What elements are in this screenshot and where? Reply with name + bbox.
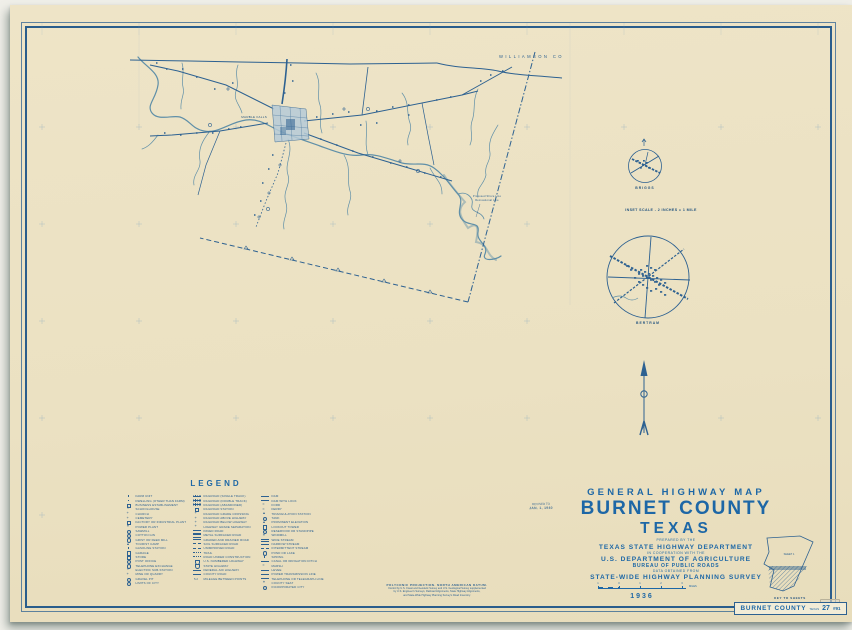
- dot-symbol-icon: [124, 499, 133, 502]
- circ-symbol-icon: [124, 529, 133, 532]
- revision-stamp: REVISED TO JAN. 1, 1940: [518, 502, 564, 512]
- key-map-shape: [764, 536, 813, 591]
- legend-item: LIMITS OF CITY: [124, 581, 192, 585]
- cross-symbol-icon: [124, 516, 133, 519]
- star-symbol-icon: [260, 534, 269, 537]
- dash-symbol-icon: [192, 542, 201, 545]
- tri-symbol-icon: [260, 521, 269, 524]
- key-sheet1-label: SHEET 1: [784, 554, 795, 557]
- dots-symbol-icon: [192, 555, 201, 558]
- key-to-sheets-caption: KEY TO SHEETS: [774, 597, 806, 600]
- farm-symbols: [156, 63, 504, 215]
- line-symbol-icon: [192, 573, 201, 576]
- legend-column-2: RAILROAD (SINGLE TRACK)RAILROAD (DOUBLE …: [192, 494, 260, 581]
- line-symbol-icon: [192, 538, 201, 541]
- bertram-inset: [607, 236, 690, 318]
- dots-symbol-icon: [192, 551, 201, 554]
- revision-date: JAN. 1, 1940: [529, 506, 553, 510]
- dbl-symbol-icon: [192, 534, 201, 537]
- line-symbol-icon: [260, 542, 269, 545]
- graticule: [39, 23, 821, 518]
- circ-symbol-icon: [124, 577, 133, 580]
- line-symbol-icon: [260, 560, 269, 563]
- num-symbol-icon: [192, 577, 201, 580]
- legend-title: LEGEND: [190, 479, 241, 488]
- legend-item: MILEAGE BETWEEN POINTS: [192, 577, 260, 581]
- map-series-title: GENERAL HIGHWAY MAP: [587, 488, 765, 498]
- scale-bar-unit: MILES: [689, 585, 697, 588]
- annotation-line2: Recreational Line: [475, 200, 499, 203]
- rr-symbol-icon: [192, 503, 201, 506]
- rr-symbol-icon: [192, 495, 201, 498]
- rr-symbol-icon: [192, 499, 201, 502]
- shield-symbol-icon: [192, 564, 201, 567]
- scale-bar-line: [598, 586, 686, 589]
- wave-symbol-icon: [260, 508, 269, 511]
- roads: [150, 59, 512, 227]
- star-symbol-icon: [124, 525, 133, 528]
- legend-item: INCORPORATED CITY: [260, 585, 328, 589]
- corner-number: 27: [822, 605, 830, 612]
- survey-note: STATE-WIDE HIGHWAY PLANNING SURVEY: [590, 574, 762, 581]
- town-marble-falls: [272, 105, 309, 142]
- prepared-by: PREPARED BY THE: [657, 539, 696, 543]
- line-symbol-icon: [260, 495, 269, 498]
- legend: LEGEND FARM UNITDWELLING (OTHER THAN FAR…: [110, 479, 322, 599]
- line-symbol-icon: [192, 569, 201, 572]
- place-symbols: [208, 87, 419, 211]
- shield-symbol-icon: [192, 560, 201, 563]
- line-symbol-icon: [260, 569, 269, 572]
- dash-symbol-icon: [260, 547, 269, 550]
- dbl-symbol-icon: [192, 529, 201, 532]
- circ-symbol-icon: [260, 516, 269, 519]
- star-symbol-icon: [260, 582, 269, 585]
- sq-symbol-icon: [260, 525, 269, 528]
- annotation-leader: [476, 204, 480, 217]
- corner-code: #91: [833, 606, 841, 611]
- tri-symbol-icon: [124, 542, 133, 545]
- circ-symbol-icon: [260, 551, 269, 554]
- bertram-label: BERTRAM: [636, 322, 660, 326]
- town-label: MARBLE FALLS: [241, 116, 267, 119]
- briggs-label: BRIGGS: [635, 187, 654, 191]
- corner-state: TEXAS: [809, 607, 819, 611]
- corner-index-label: BURNET COUNTY TEXAS 27 #91: [734, 602, 847, 615]
- projection-footnote: POLYCONIC PROJECTION. NORTH AMERICAN DAT…: [362, 583, 512, 597]
- cross-symbol-icon: [192, 525, 201, 528]
- dbl-symbol-icon: [260, 538, 269, 541]
- briggs-inset: [629, 139, 662, 183]
- sq-symbol-icon: [124, 551, 133, 554]
- tri-symbol-icon: [260, 512, 269, 515]
- dot-symbol-icon: [124, 547, 133, 550]
- line-symbol-icon: [260, 573, 269, 576]
- circ-symbol-icon: [124, 534, 133, 537]
- legend-column-3: DAMDAM WITH LOCKFORDFERRYTRIANGULATION S…: [260, 494, 328, 590]
- inset-scale-note: INSET SCALE - 2 INCHES = 1 MILE: [625, 209, 697, 213]
- map-sheet: WILLIAMSON CO MARBLE FALLS Proposed Shor…: [10, 5, 852, 622]
- circ-symbol-icon: [124, 582, 133, 585]
- legend-column-1: FARM UNITDWELLING (OTHER THAN FARM)BUSIN…: [124, 494, 192, 585]
- line-symbol-icon: [260, 499, 269, 502]
- neighbor-county-label: WILLIAMSON CO: [499, 55, 564, 60]
- dot-symbol-icon: [260, 555, 269, 558]
- circ-symbol-icon: [260, 586, 269, 589]
- dash-symbol-icon: [192, 547, 201, 550]
- corner-county: BURNET COUNTY: [741, 605, 807, 612]
- cross-symbol-icon: [124, 573, 133, 576]
- map-year: 1936: [630, 593, 654, 601]
- county-title: BURNET COUNTY: [581, 499, 772, 520]
- sq-symbol-icon: [124, 555, 133, 558]
- dot-symbol-icon: [124, 495, 133, 498]
- river-colorado: [138, 57, 501, 260]
- north-arrow-icon: [640, 360, 648, 435]
- circ-symbol-icon: [124, 560, 133, 563]
- circ-symbol-icon: [124, 538, 133, 541]
- wave-symbol-icon: [260, 503, 269, 506]
- wave-symbol-icon: [260, 564, 269, 567]
- control-line-3: and State-Wide Highway Planning Survey's…: [362, 594, 512, 597]
- state-title: TEXAS: [640, 520, 712, 537]
